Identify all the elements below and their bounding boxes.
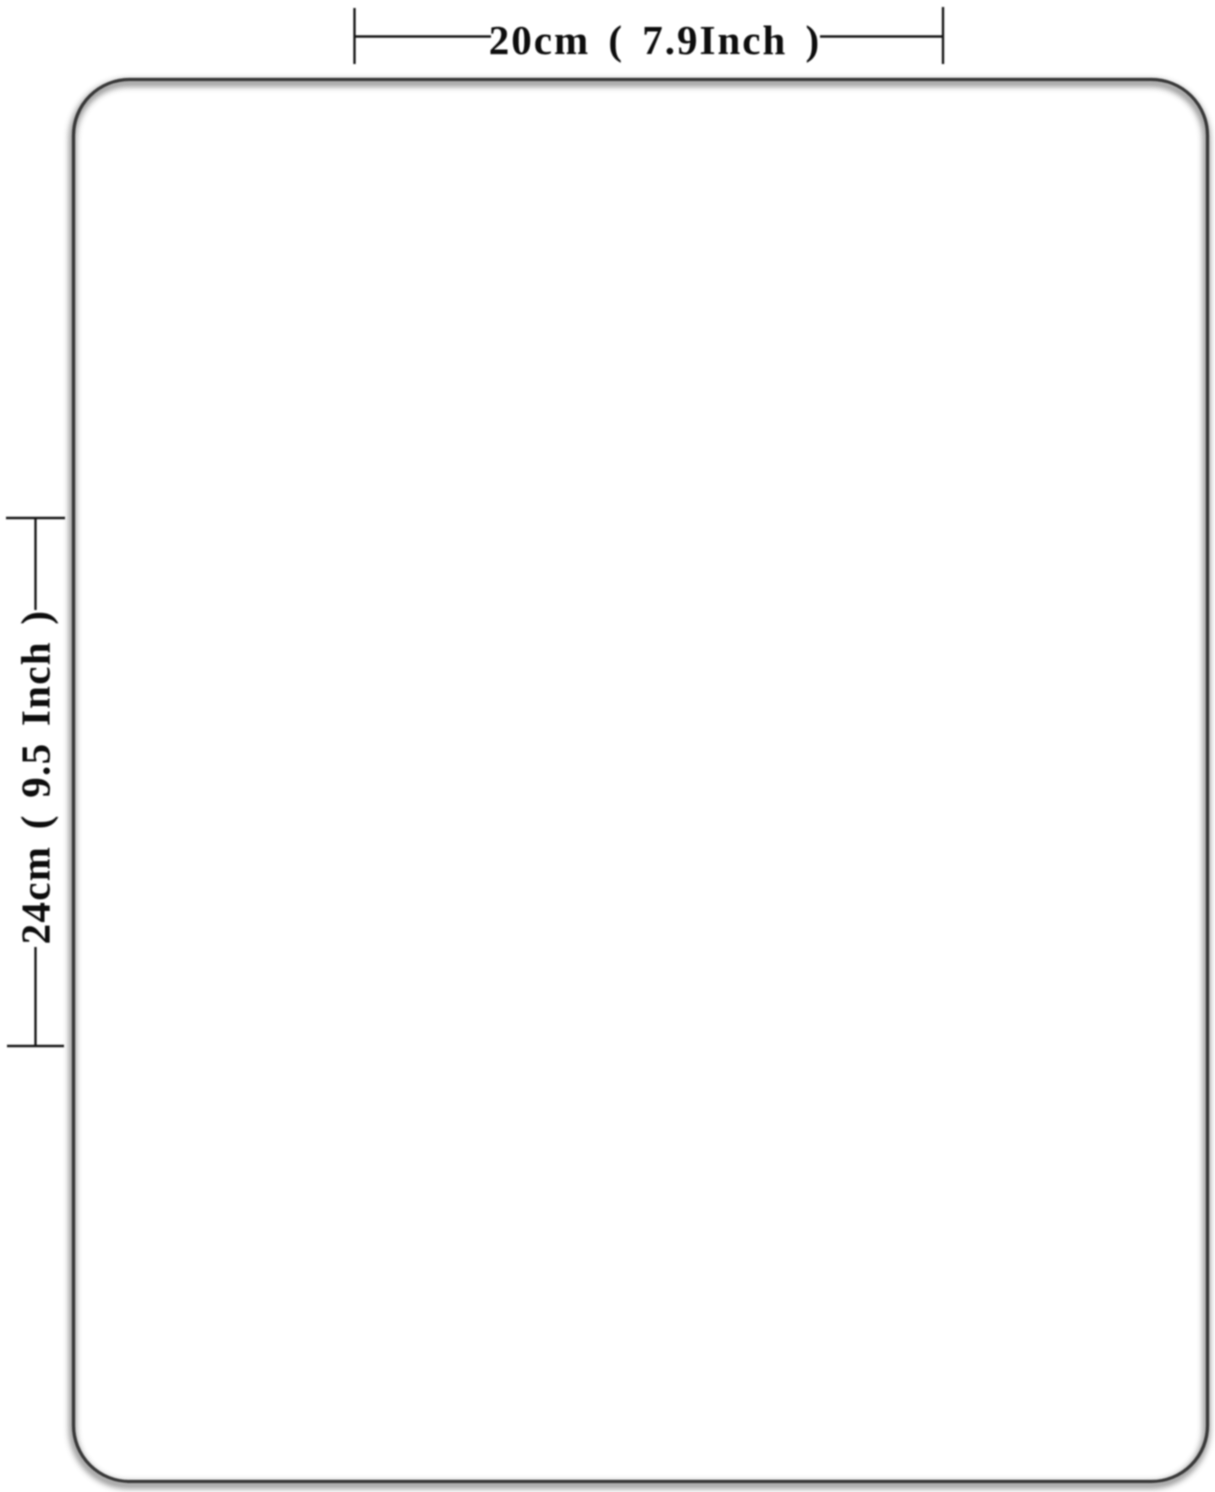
svg-text:24cm ( 9.5 Inch ): 24cm ( 9.5 Inch ): [13, 610, 59, 945]
svg-text:20cm ( 7.9Inch ): 20cm ( 7.9Inch ): [489, 17, 821, 63]
